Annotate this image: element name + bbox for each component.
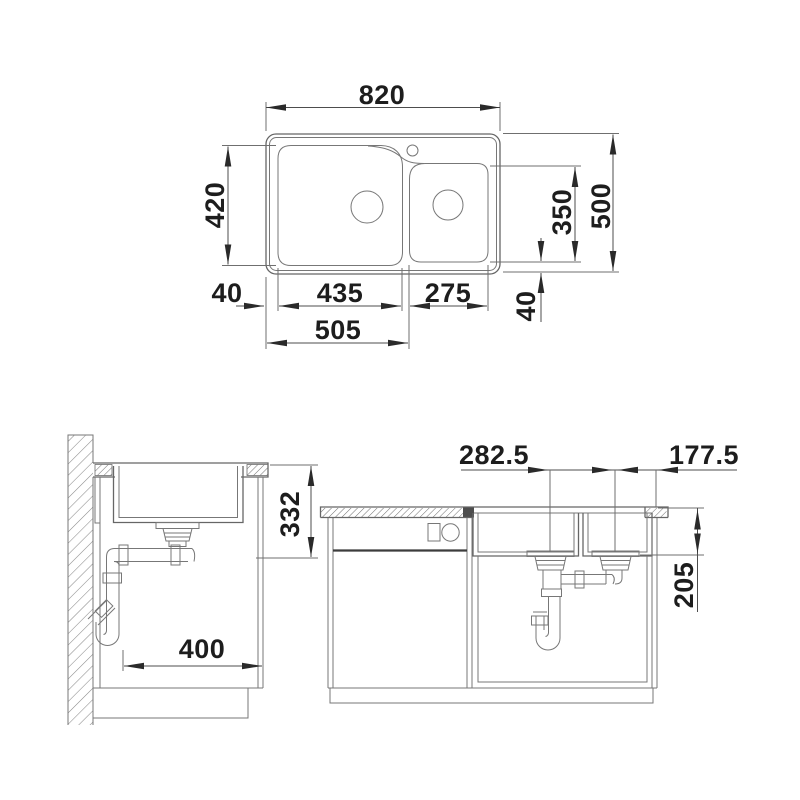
dim-bottom-edge-offset: 40 [511, 238, 541, 322]
appliance-knob [442, 524, 459, 541]
cabinet-walls [328, 518, 657, 688]
outlet-coupling [95, 600, 113, 618]
strainer-body [163, 529, 192, 542]
dim-bottom-chain: 40 435 275 505 [211, 265, 488, 349]
countertop-hatch-left [95, 465, 112, 476]
dim-label: 350 [547, 189, 577, 236]
left-bowl-outer [473, 513, 579, 556]
strainer-body [600, 557, 631, 571]
front-section-view: 282.5 177.5 205 [321, 440, 740, 703]
plan-view: 820 500 420 350 40 [200, 80, 619, 349]
tap-hole [407, 145, 418, 156]
dim-small-bowl-depth: 350 [490, 166, 581, 262]
cabinet-base-plinth [93, 688, 263, 718]
horizontal-pipe [114, 549, 195, 562]
pipe-coupling [575, 571, 584, 588]
p-trap [88, 545, 195, 646]
side-section-view: 332 400 [68, 435, 318, 725]
small-bowl-drain [433, 190, 463, 220]
sink-technical-drawing: 820 500 420 350 40 [0, 0, 800, 800]
pipe-coupling [542, 589, 562, 597]
dim-overall-width: 820 [266, 80, 500, 131]
connecting-pipes [543, 570, 622, 589]
dim-label: 400 [179, 634, 226, 664]
countertop-hatch-left [321, 508, 464, 518]
right-bowl-inner [588, 513, 647, 552]
dim-label-275: 275 [425, 278, 472, 308]
dim-label: 500 [586, 183, 616, 230]
dim-label: 820 [359, 80, 406, 110]
drain-strainer [156, 523, 199, 547]
wall-hatch [68, 435, 93, 725]
left-bowl-inner [478, 513, 574, 552]
dim-label: 332 [275, 491, 305, 538]
elbow [107, 549, 120, 567]
back-panel [95, 477, 100, 523]
twin-trap-piping [532, 570, 623, 650]
dim-label: 420 [200, 182, 230, 229]
strainer-body [535, 557, 566, 571]
dim-main-bowl-depth: 420 [200, 146, 276, 266]
strainer-flange [156, 523, 199, 529]
dim-countertop-to-trap: 332 [256, 465, 318, 558]
basin-outer [114, 466, 244, 523]
drawing-canvas: 820 500 420 350 40 [0, 0, 800, 800]
dim-label-40-left: 40 [211, 278, 242, 308]
dim-label: 40 [511, 290, 541, 321]
basin-inner [119, 466, 238, 518]
countertop-hatch-right [247, 465, 268, 476]
dim-wall-clearance: 400 [123, 634, 262, 671]
dim-label-435: 435 [317, 278, 364, 308]
dim-label: 205 [669, 562, 699, 609]
right-bowl-outer [583, 513, 652, 556]
dim-label-177-5: 177.5 [669, 440, 739, 470]
right-drain-strainer [592, 551, 639, 570]
dim-bowl-depth: 205 [640, 508, 704, 612]
outlet-coupling [532, 616, 549, 625]
dim-label-282-5: 282.5 [459, 440, 529, 470]
small-bowl [410, 164, 489, 263]
main-bowl-drain [351, 191, 383, 223]
strainer-nut [169, 541, 186, 547]
left-drain-strainer [527, 551, 574, 570]
cabinet-base-plinth [328, 688, 657, 703]
appliance-button [428, 524, 440, 542]
dim-label-505: 505 [315, 315, 362, 345]
left-arm [536, 616, 544, 630]
main-bowl [278, 146, 403, 266]
